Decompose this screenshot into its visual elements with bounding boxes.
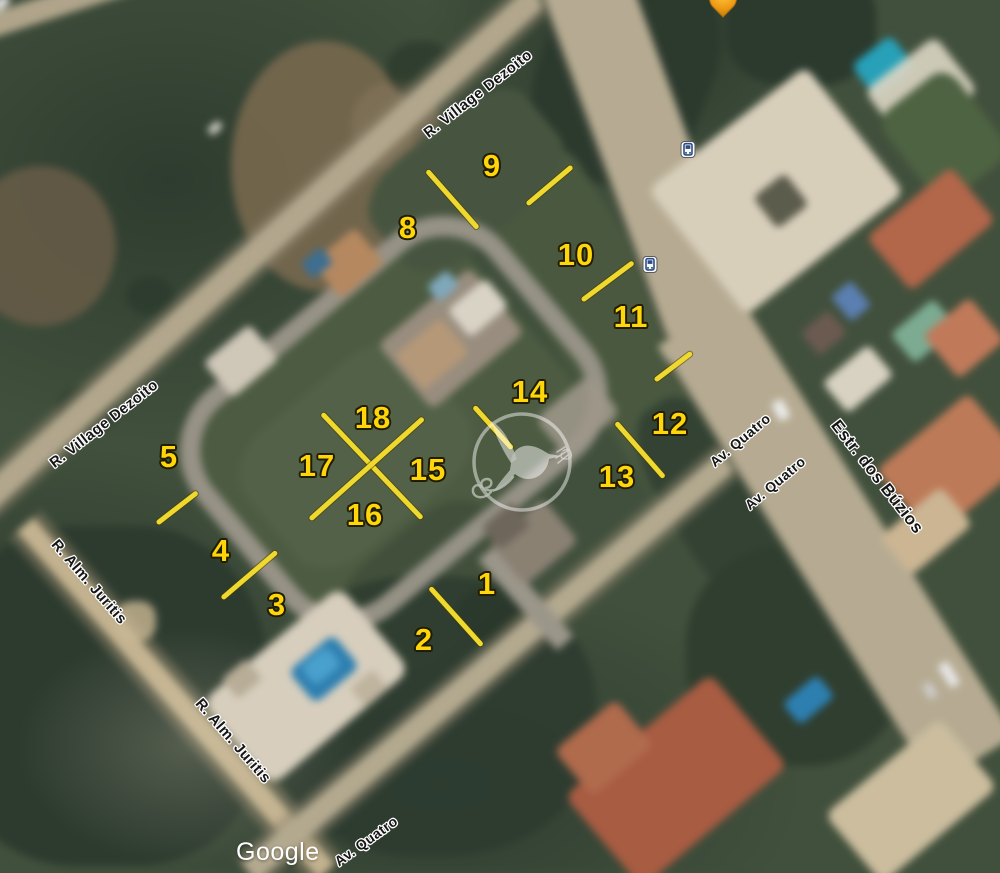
line-1-2 xyxy=(428,585,484,646)
street-av-quatro-mid: Av. Quatro xyxy=(742,453,809,513)
lot-marker-5: 5 xyxy=(160,439,178,475)
lot-marker-17: 17 xyxy=(299,448,335,484)
lot-marker-11: 11 xyxy=(614,299,649,335)
line-14-15 xyxy=(472,404,514,449)
bus-stop-north-icon[interactable] xyxy=(680,141,696,164)
lot-marker-15: 15 xyxy=(410,452,446,488)
line-9-10 xyxy=(525,164,573,206)
line-8-9 xyxy=(425,168,480,229)
lot-marker-2: 2 xyxy=(415,622,433,658)
lot-marker-9: 9 xyxy=(483,148,501,184)
lot-marker-8: 8 xyxy=(399,210,417,246)
street-av-quatro-bottom: Av. Quatro xyxy=(331,813,400,869)
street-r-alm-juritis-upper: R. Alm. Juritis xyxy=(48,536,131,627)
street-estr-dos-buzios: Estr. dos Búzios xyxy=(826,416,927,538)
lot-marker-13: 13 xyxy=(599,459,635,495)
lot-marker-4: 4 xyxy=(212,533,230,569)
street-r-village-dezoito-top: R. Village Dezoito xyxy=(420,46,535,141)
line-4-5 xyxy=(155,490,198,525)
google-logo[interactable]: Google xyxy=(236,838,320,867)
lot-marker-1: 1 xyxy=(478,566,496,602)
satellite-map-canvas[interactable]: 1234589101112131415161718R. Village Dezo… xyxy=(0,0,1000,873)
street-r-alm-juritis-lower: R. Alm. Juritis xyxy=(192,695,275,786)
lot-marker-12: 12 xyxy=(652,406,688,442)
bus-stop-south-icon[interactable] xyxy=(642,256,658,279)
line-11-12 xyxy=(653,350,693,382)
lot-marker-3: 3 xyxy=(268,587,286,623)
lot-marker-18: 18 xyxy=(355,400,391,436)
map-annotations-layer: 1234589101112131415161718R. Village Dezo… xyxy=(0,0,1000,873)
lot-marker-14: 14 xyxy=(512,374,548,410)
street-av-quatro-upper: Av. Quatro xyxy=(707,410,774,470)
street-r-village-dezoito-left: R. Village Dezoito xyxy=(46,376,161,471)
lot-marker-10: 10 xyxy=(558,237,594,273)
lot-marker-16: 16 xyxy=(347,497,383,533)
